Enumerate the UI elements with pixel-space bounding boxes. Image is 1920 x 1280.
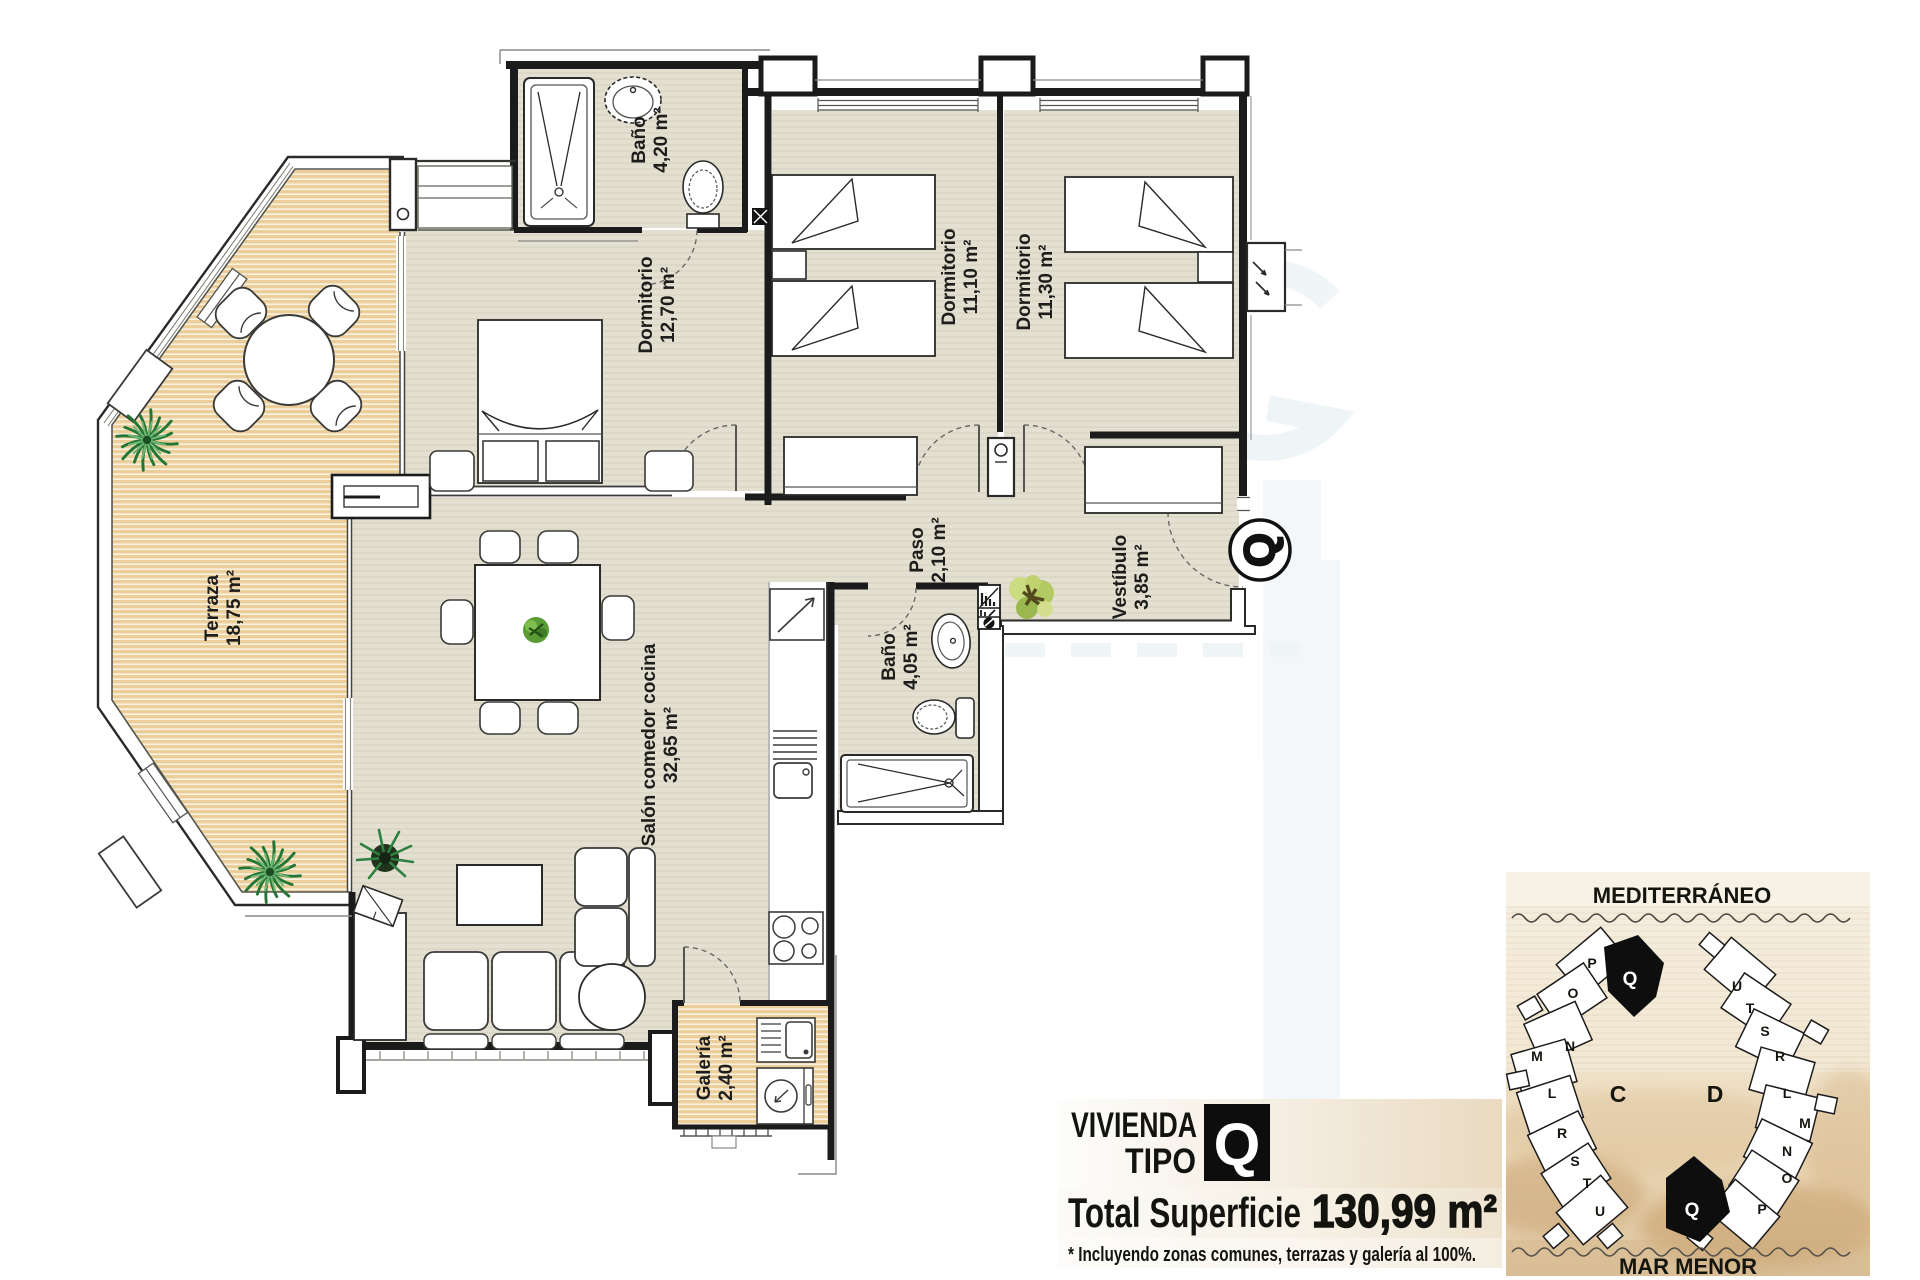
svg-text:Q: Q [1214, 1111, 1261, 1178]
svg-text:C: C [1610, 1081, 1627, 1107]
svg-text:130,99 m²: 130,99 m² [1312, 1185, 1497, 1237]
svg-text:O: O [1782, 1170, 1793, 1186]
svg-text:S: S [1570, 1153, 1579, 1169]
svg-text:T: T [1746, 1000, 1755, 1016]
svg-text:Galería2,40 m²: Galería2,40 m² [694, 1035, 737, 1100]
svg-text:P: P [1587, 955, 1596, 971]
svg-text:TIPO: TIPO [1125, 1142, 1196, 1181]
svg-text:Vestíbulo3,85 m²: Vestíbulo3,85 m² [1110, 535, 1153, 619]
svg-text:Baño4,20 m²: Baño4,20 m² [629, 107, 672, 172]
svg-text:L: L [1783, 1085, 1792, 1101]
svg-text:Baño4,05 m²: Baño4,05 m² [879, 624, 922, 689]
svg-text:S: S [1760, 1023, 1769, 1039]
svg-text:R: R [1775, 1048, 1785, 1064]
svg-text:T: T [1583, 1175, 1592, 1191]
svg-text:O: O [1568, 985, 1579, 1001]
svg-text:U: U [1732, 978, 1742, 994]
svg-text:N: N [1565, 1038, 1575, 1054]
svg-text:MEDITERRÁNEO: MEDITERRÁNEO [1593, 883, 1771, 908]
svg-text:L: L [1548, 1085, 1557, 1101]
svg-text:Total Superficie: Total Superficie [1068, 1189, 1301, 1236]
svg-text:Q: Q [1685, 1200, 1700, 1221]
svg-text:Dormitorio11,30 m²: Dormitorio11,30 m² [1014, 233, 1057, 330]
svg-text:R: R [1557, 1125, 1567, 1141]
svg-text:Terraza18,75 m²: Terraza18,75 m² [202, 570, 245, 646]
svg-text:U: U [1595, 1203, 1605, 1219]
svg-text:Q: Q [1623, 969, 1638, 990]
svg-text:N: N [1782, 1143, 1792, 1159]
svg-text:Dormitorio12,70 m²: Dormitorio12,70 m² [636, 256, 679, 353]
svg-text:Q: Q [1236, 533, 1285, 567]
svg-text:M: M [1799, 1115, 1811, 1131]
svg-text:P: P [1757, 1201, 1766, 1217]
svg-text:D: D [1707, 1081, 1724, 1107]
svg-text:Dormitorio11,10 m²: Dormitorio11,10 m² [939, 228, 982, 325]
svg-text:* Incluyendo zonas comunes, te: * Incluyendo zonas comunes, terrazas y g… [1068, 1244, 1476, 1266]
svg-text:M: M [1531, 1048, 1543, 1064]
svg-text:VIVIENDA: VIVIENDA [1071, 1106, 1197, 1145]
svg-text:MAR MENOR: MAR MENOR [1619, 1254, 1757, 1279]
